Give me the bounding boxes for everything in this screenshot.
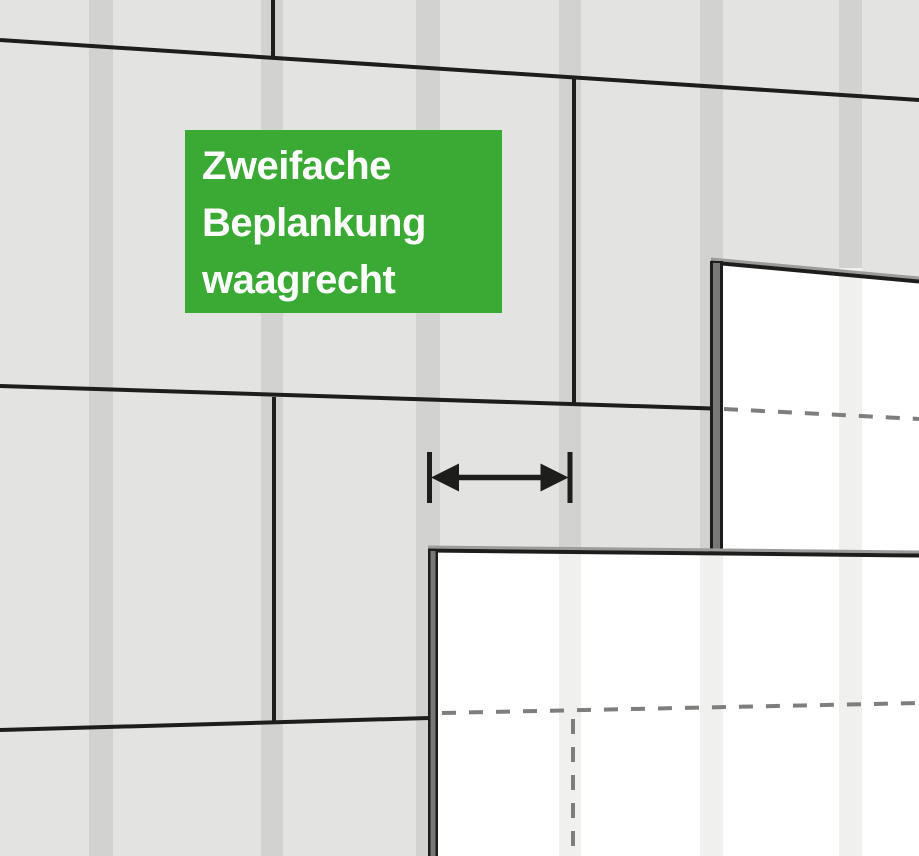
panel-faint-stripe xyxy=(700,554,723,856)
label-box: Zweifache Beplankung waagrecht xyxy=(185,130,502,313)
second-layer-panel-lower xyxy=(428,547,919,856)
installation-diagram: Zweifache Beplankung waagrecht xyxy=(0,0,919,856)
wall-illustration xyxy=(0,0,919,856)
label-line: Beplankung xyxy=(202,195,502,252)
label-line: Zweifache xyxy=(202,138,502,195)
panel-faint-stripe xyxy=(559,553,581,856)
panel-edge-thickness xyxy=(431,551,436,856)
label-line: waagrecht xyxy=(202,252,502,309)
